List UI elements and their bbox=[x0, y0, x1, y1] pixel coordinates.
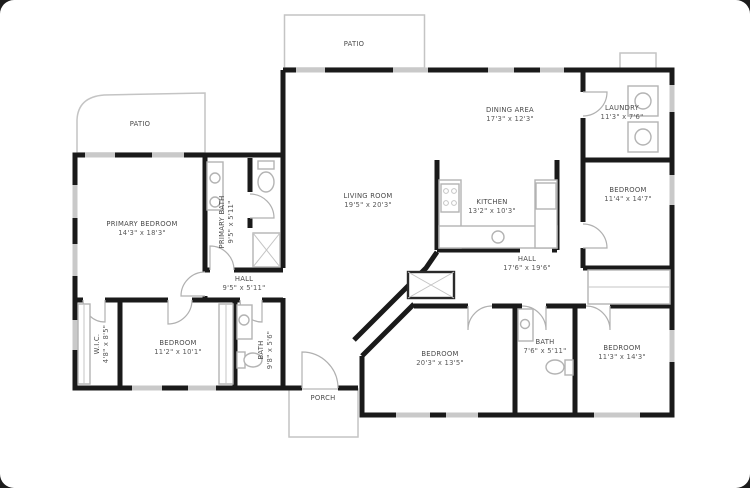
room-dims-primary-bedroom: 14'3" x 18'3" bbox=[118, 229, 166, 237]
floor-plan-canvas: PATIO PATIO PORCH LAUNDRY 11'3" x 7'6" D… bbox=[0, 0, 750, 488]
room-dims-hall-west: 9'5" x 5'11" bbox=[223, 284, 266, 292]
room-dims-living: 19'5" x 20'3" bbox=[344, 201, 392, 209]
room-label-patio-top: PATIO bbox=[344, 40, 365, 48]
room-dims-bedroom-sw: 11'2" x 10'1" bbox=[154, 348, 202, 356]
room-dims-bedroom-ne: 11'4" x 14'7" bbox=[604, 195, 652, 203]
room-label-dining: DINING AREA bbox=[486, 106, 534, 114]
room-dims-bath-mid: 9'8" x 5'6" bbox=[266, 331, 274, 369]
toilet-tank-icon bbox=[258, 161, 274, 169]
room-dims-laundry: 11'3" x 7'6" bbox=[601, 113, 644, 121]
toilet-icon bbox=[258, 172, 274, 192]
sink-icon bbox=[239, 315, 249, 325]
fridge-icon bbox=[536, 183, 556, 209]
room-label-bedroom-se: BEDROOM bbox=[603, 344, 640, 352]
room-dims-dining: 17'3" x 12'3" bbox=[486, 115, 534, 123]
dryer-drum-icon bbox=[635, 129, 651, 145]
room-label-primary-bedroom: PRIMARY BEDROOM bbox=[106, 220, 177, 228]
room-label-living: LIVING ROOM bbox=[344, 192, 393, 200]
toilet-icon bbox=[546, 360, 564, 374]
closets bbox=[78, 270, 670, 384]
room-label-porch: PORCH bbox=[311, 394, 336, 402]
room-dims-primary-bath: 9'5" x 5'11" bbox=[227, 201, 235, 244]
room-label-patio-left: PATIO bbox=[130, 120, 151, 128]
room-label-hall-east: HALL bbox=[518, 255, 536, 263]
chimney-outline bbox=[620, 53, 656, 69]
room-label-bedroom-sw: BEDROOM bbox=[159, 339, 196, 347]
room-dims-wic: 4'8" x 8'5" bbox=[102, 325, 110, 363]
kitchen-sink-icon bbox=[492, 231, 504, 243]
room-dims-bath-east: 7'6" x 5'11" bbox=[524, 347, 567, 355]
sink-icon bbox=[210, 173, 220, 183]
room-dims-hall-east: 17'6" x 19'6" bbox=[503, 264, 551, 272]
fireplace bbox=[408, 272, 454, 298]
room-dims-bedroom-se: 11'3" x 14'3" bbox=[598, 353, 646, 361]
room-label-laundry: LAUNDRY bbox=[605, 104, 640, 112]
floor-plan-svg: PATIO PATIO PORCH LAUNDRY 11'3" x 7'6" D… bbox=[0, 0, 750, 488]
room-label-kitchen: KITCHEN bbox=[476, 198, 507, 206]
stove-icon bbox=[441, 184, 459, 212]
toilet-tank-icon bbox=[565, 360, 573, 375]
room-label-primary-bath: PRIMARY BATH bbox=[218, 196, 226, 249]
room-dims-kitchen: 13'2" x 10'3" bbox=[468, 207, 516, 215]
room-label-wic: W.I.C. bbox=[93, 334, 101, 355]
room-label-bedroom-s: BEDROOM bbox=[421, 350, 458, 358]
room-label-bath-mid: BATH bbox=[257, 340, 265, 359]
room-dims-bedroom-s: 20'3" x 13'5" bbox=[416, 359, 464, 367]
room-label-bedroom-ne: BEDROOM bbox=[609, 186, 646, 194]
room-label-hall-west: HALL bbox=[235, 275, 253, 283]
room-label-bath-east: BATH bbox=[535, 338, 554, 346]
sink-icon bbox=[521, 320, 530, 329]
